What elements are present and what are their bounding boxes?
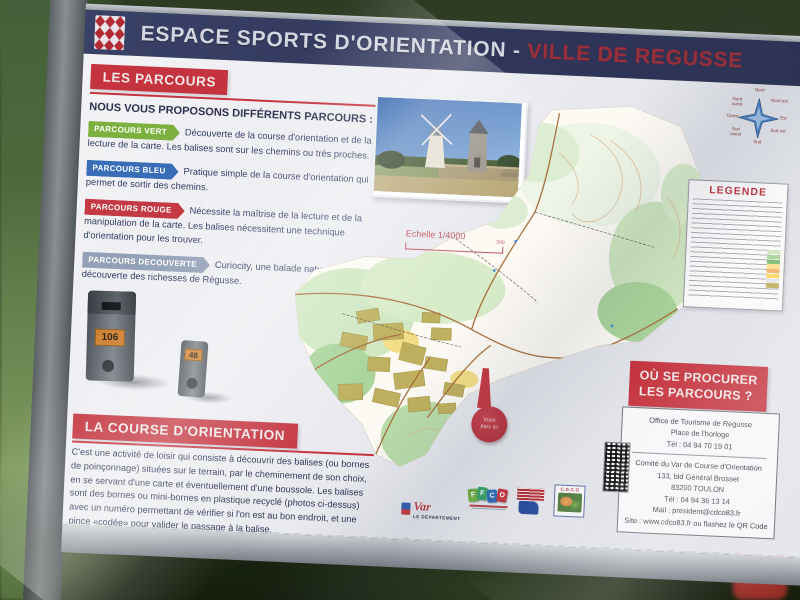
partner-logo-3-red-block — [517, 488, 545, 501]
board-panel: ESPACE SPORTS D'ORIENTATION - VILLE DE R… — [61, 4, 800, 589]
procure-heading: OÙ SE PROCURER LES PARCOURS ? — [628, 361, 768, 412]
cdco-logo-map — [557, 493, 582, 513]
title-city: VILLE DE REGUSSE — [527, 40, 744, 73]
compass-rose: Nord Nord est Est Sud est Sud Sud ouest … — [724, 87, 793, 150]
you-are-here-label: Vous êtes ici — [478, 417, 501, 432]
borne-small-hole — [186, 378, 198, 390]
borne-large-number: 106 — [94, 328, 125, 346]
compass-south: Sud — [750, 140, 764, 146]
map-scale: Echelle 1/4000 200 — [405, 228, 504, 253]
panel-content: LES PARCOURS NOUS VOUS PROPOSONS DIFFÉRE… — [62, 54, 800, 560]
compass-southwest: Sud ouest — [727, 127, 745, 138]
compass-southeast: Sud est — [769, 129, 787, 135]
cdco-logo: C.D.C.O — [553, 484, 585, 517]
compass-northwest: Nord ouest — [728, 97, 746, 108]
map-legend: LEGENDE — [683, 179, 789, 311]
borne-large-hole — [102, 360, 114, 372]
ffco-subtext-line2 — [471, 508, 505, 511]
les-parcours-heading: LES PARCOURS — [90, 64, 228, 95]
qr-code — [602, 442, 630, 493]
compass-east: Est — [777, 116, 789, 121]
partner-logo-3 — [515, 487, 546, 518]
you-are-here-pointer — [470, 368, 502, 411]
var-flag-icon — [401, 502, 411, 514]
compass-west: Ouest — [725, 114, 739, 120]
ffco-logo: F F C O — [467, 486, 512, 518]
borne-small-number: 48 — [184, 348, 202, 361]
var-logo-label: LE DÉPARTEMENT — [413, 514, 461, 521]
compass-northeast: Nord est — [770, 99, 788, 105]
title-main: ESPACE SPORTS D'ORIENTATION - — [140, 22, 521, 62]
scale-end-value: 200 — [496, 239, 505, 245]
partner-logo-3-blue-block — [518, 501, 539, 515]
ffco-tile-o: O — [496, 488, 508, 503]
compass-north: Nord — [753, 88, 767, 94]
borne-small-photo: 48 — [178, 340, 209, 398]
legend-title: LEGENDE — [693, 183, 783, 199]
borne-large-slot — [102, 302, 120, 311]
legend-swatches — [766, 250, 781, 289]
contact-box: Office de Tourisme de Regusse Place de l… — [617, 406, 781, 539]
borne-large-photo: 106 — [86, 290, 136, 381]
photo-of-information-board: ESPACE SPORTS D'ORIENTATION - VILLE DE R… — [0, 0, 800, 600]
legend-rows — [688, 198, 782, 302]
information-board: ESPACE SPORTS D'ORIENTATION - VILLE DE R… — [23, 2, 800, 600]
regusse-crest-icon — [94, 15, 126, 50]
var-departement-logo: Var LE DÉPARTEMENT — [401, 496, 464, 523]
